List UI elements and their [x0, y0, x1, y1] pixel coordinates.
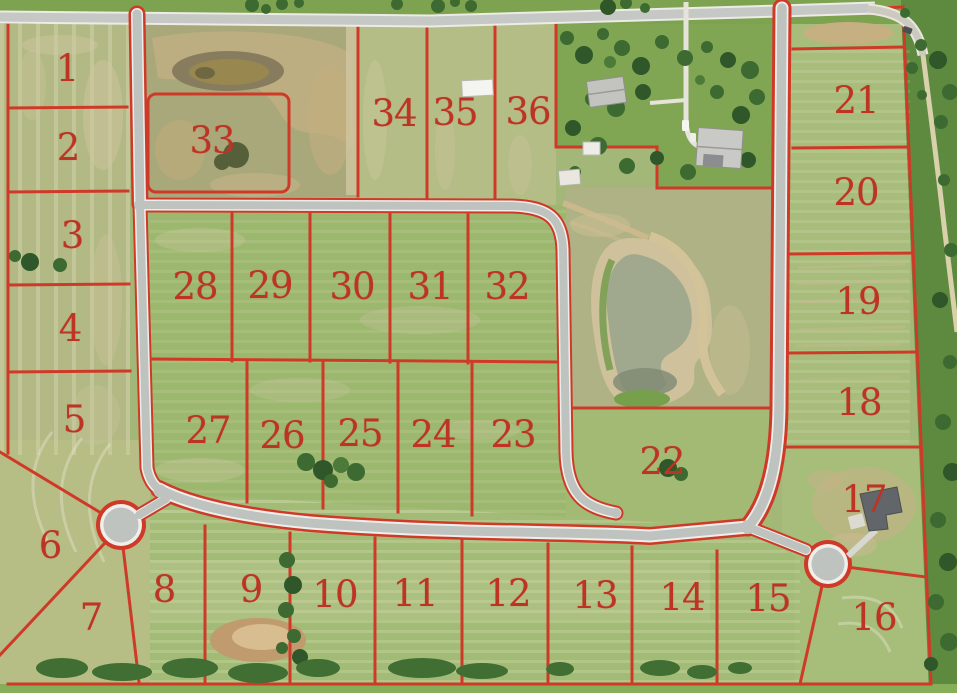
shed-2 — [558, 169, 580, 186]
farmhouse-1 — [586, 76, 626, 107]
white-barn — [462, 79, 494, 97]
shed-1 — [583, 142, 600, 155]
white-vehicle — [682, 120, 689, 131]
east-cul-de-sac-pavement — [812, 548, 845, 581]
aerial-photo — [0, 0, 957, 693]
west-cul-de-sac-pavement — [104, 508, 139, 543]
aerial-plat-map: 1234567891011121314151617181920212223242… — [0, 0, 957, 693]
farmhouse-2 — [696, 128, 744, 169]
farm-track — [346, 25, 358, 195]
